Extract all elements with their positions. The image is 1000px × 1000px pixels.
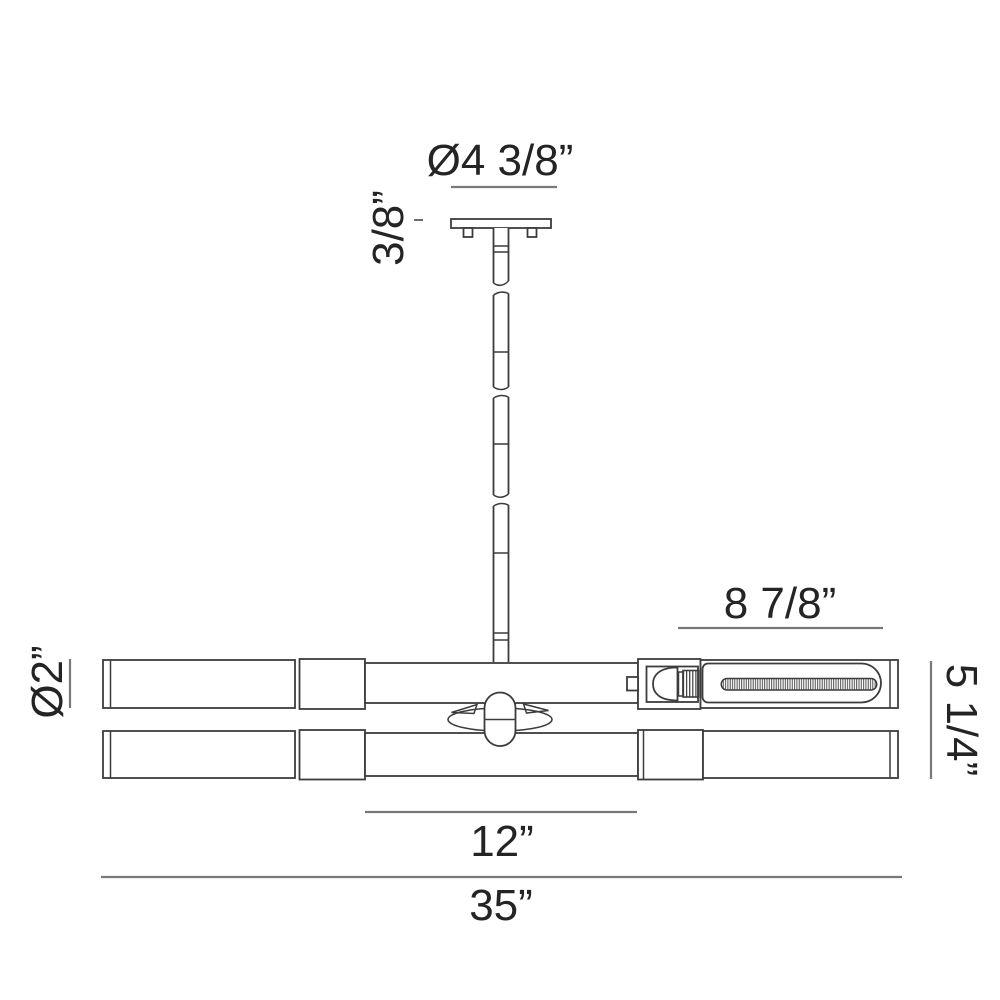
pendant-fixture-drawing: Ø4 3/8” 3/8” 8 7/8” Ø2” 5 1/4” 12” 35”	[0, 0, 1000, 1000]
lamp-section-length-label: 8 7/8”	[724, 579, 837, 628]
upper-left-glass-tube	[103, 660, 295, 708]
canopy-height-label: 3/8”	[364, 190, 413, 266]
lower-right-socket	[638, 730, 703, 780]
tube-diameter-label: Ø2”	[23, 645, 72, 718]
canopy-diameter-label: Ø4 3/8”	[427, 136, 574, 185]
mounting-screw-right	[528, 228, 537, 237]
upper-left-socket	[300, 659, 366, 709]
lower-right-glass-tube	[703, 731, 898, 778]
mounting-screw-left	[464, 228, 473, 237]
lower-left-glass-tube	[103, 731, 295, 778]
body-height-label: 5 1/4”	[937, 664, 986, 777]
socket-set-screw	[627, 677, 638, 691]
overall-width-label: 35”	[469, 881, 533, 930]
downrod	[494, 228, 509, 662]
socket-threads	[683, 671, 699, 698]
center-span-label: 12”	[470, 817, 534, 866]
threaded-rod	[721, 679, 877, 691]
canopy-plate	[451, 219, 551, 228]
drawing-canvas: Ø4 3/8” 3/8” 8 7/8” Ø2” 5 1/4” 12” 35”	[0, 0, 1000, 1000]
lower-left-socket	[300, 730, 366, 780]
rotation-arrow-right	[524, 704, 549, 713]
